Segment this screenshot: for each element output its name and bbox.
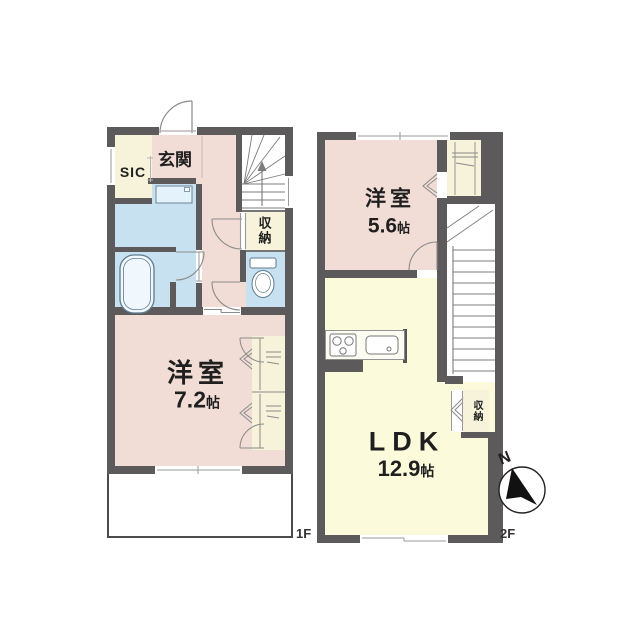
floor-1f-label: 1F (296, 527, 311, 540)
storage-1f-door-strip (240, 212, 246, 250)
ldk-size: 12.9帖 (378, 458, 435, 480)
ldk-name: LDK (369, 429, 446, 456)
window-2f-top (356, 132, 450, 140)
floor-2f-label: 2F (500, 527, 515, 540)
storage-2f-label: 収納 (471, 400, 481, 422)
window-1f-left (107, 147, 115, 185)
bedroom1-sliding-door (203, 307, 241, 315)
floorplan-canvas: SIC 玄関 収納 洋室 7.2帖 1F 洋室 5.6帖 LDK 12.9帖 収… (0, 0, 639, 640)
bedroom2-name: 洋室 (365, 189, 415, 210)
storage-1f-label: 収納 (258, 216, 271, 246)
closet2-door-gap (437, 172, 447, 198)
bedroom2-size-value: 5.6 (368, 215, 397, 238)
bedroom2-size: 5.6帖 (368, 216, 410, 237)
entrance-door-gap (159, 127, 197, 135)
compass-icon (499, 467, 545, 513)
bedroom1-size: 7.2帖 (174, 389, 220, 412)
washroom-opening (196, 250, 202, 283)
genkan-label: 玄関 (158, 152, 192, 169)
bedroom2-size-unit: 帖 (397, 221, 410, 236)
bedroom1-size-value: 7.2 (174, 387, 206, 413)
window-1f-right (285, 176, 293, 208)
window-2f-bottom (360, 535, 448, 543)
ldk-size-unit: 帖 (420, 463, 434, 479)
north-arrow-icon (506, 468, 537, 505)
storage-2f-door-strip (451, 390, 463, 432)
terrace (107, 474, 293, 538)
bedroom1-name: 洋室 (167, 360, 229, 386)
ldk-size-value: 12.9 (378, 456, 421, 481)
window-1f-bottom (155, 466, 242, 474)
bedroom2-door-gap (417, 270, 437, 278)
sic-label: SIC (120, 165, 146, 179)
bedroom1-size-unit: 帖 (206, 395, 220, 411)
